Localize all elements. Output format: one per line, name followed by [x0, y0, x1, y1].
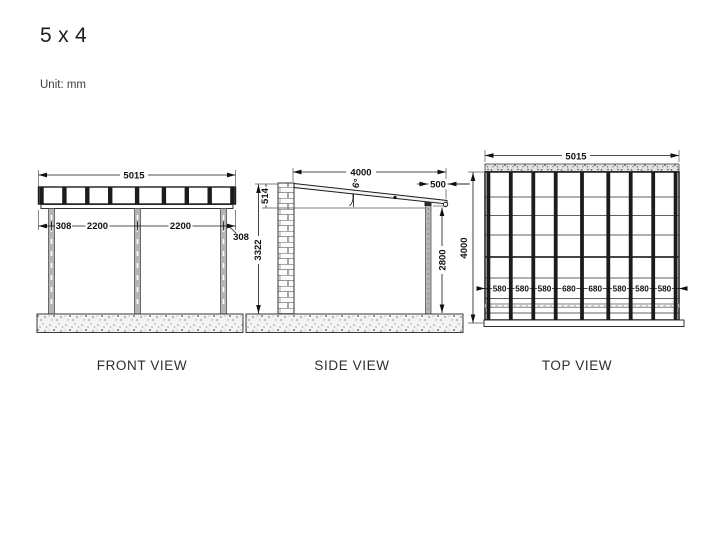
spacing-dim-0: 580 — [493, 284, 507, 293]
technical-drawing-canvas: 5015 — [0, 0, 720, 554]
top-width-dim: 5015 — [565, 151, 587, 162]
spacing-dim-6: 580 — [635, 284, 649, 293]
side-roof-angle-dim: 6° — [350, 177, 363, 189]
front-beam — [41, 205, 233, 209]
spacing-dim-1: 580 — [515, 284, 529, 293]
front-view-label: FRONT VIEW — [97, 358, 188, 373]
side-ground-slab — [246, 314, 463, 333]
side-post-bracket — [425, 202, 432, 206]
spacing-dim-4: 680 — [588, 284, 602, 293]
front-right-offset-dim: 308 — [233, 232, 249, 243]
front-total-width-dim: 5015 — [123, 171, 145, 182]
spacing-dim-2: 580 — [538, 284, 552, 293]
front-left-offset-dim: 308 — [56, 221, 72, 232]
front-view-drawing: 5015 — [37, 170, 249, 333]
top-wall-strip — [485, 164, 679, 172]
side-depth-dim: 4000 — [350, 168, 371, 179]
top-depth-extensions — [468, 172, 484, 323]
side-fascia-dim: 514 — [260, 187, 271, 204]
top-view-label: TOP VIEW — [542, 358, 612, 373]
side-brick-wall — [278, 183, 294, 314]
side-overhang-dim: 500 — [430, 179, 446, 190]
front-ground-slab — [37, 314, 243, 333]
side-connector-dot — [393, 196, 396, 199]
side-post-height-dim: 2800 — [437, 249, 448, 270]
spacing-dim-3: 680 — [562, 284, 576, 293]
side-wall-height-dim-group: 3322 — [253, 236, 264, 264]
drawing-sheet: 5 x 4 Unit: mm — [0, 0, 720, 554]
spacing-dim-7: 580 — [658, 284, 672, 293]
top-fascia-strip — [484, 320, 684, 327]
side-view-label: SIDE VIEW — [314, 358, 389, 373]
top-view-drawing: 5015 — [459, 150, 687, 327]
spacing-dim-5: 580 — [613, 284, 627, 293]
top-depth-dim: 4000 — [459, 237, 470, 258]
side-sloped-rafter — [294, 184, 447, 205]
side-angle-arc — [350, 195, 354, 207]
front-bay-right-dim: 2200 — [170, 221, 191, 232]
side-post-height-dim-group: 2800 — [437, 246, 448, 274]
side-fascia-dim-group: 514 — [260, 187, 271, 206]
side-view-drawing: 4000 6° 500 — [246, 167, 470, 333]
front-bay-left-dim: 2200 — [87, 221, 108, 232]
side-wall-height-dim: 3322 — [253, 239, 264, 260]
